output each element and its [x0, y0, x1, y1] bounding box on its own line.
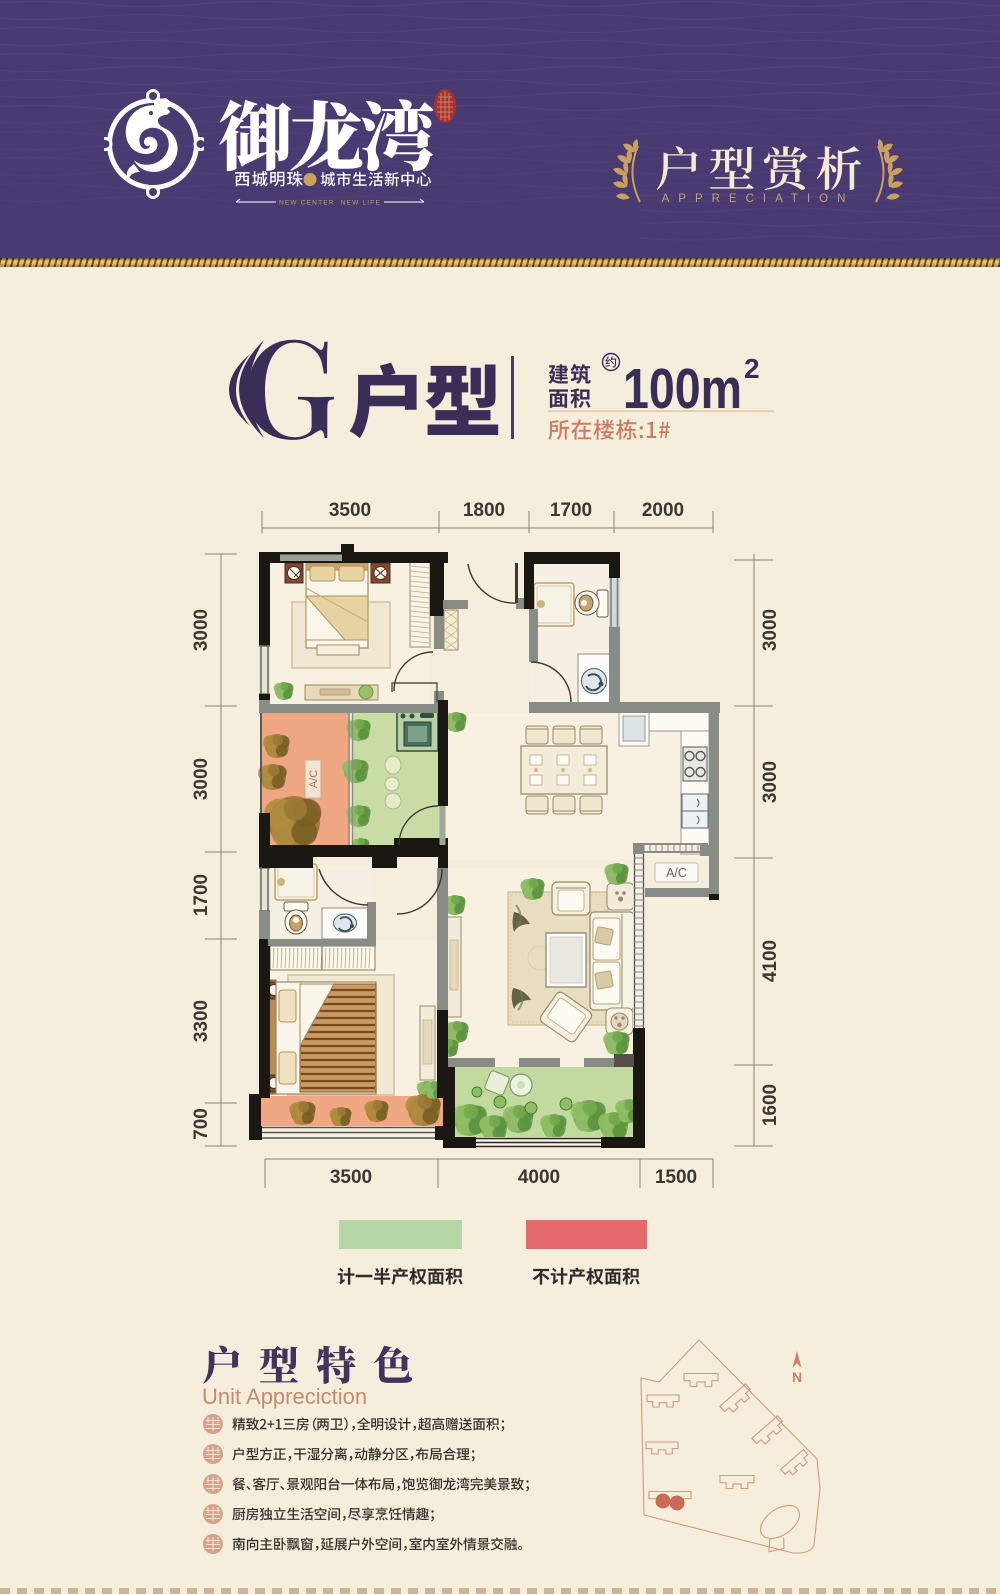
svg-text:2: 2 — [744, 353, 760, 384]
svg-text:1700: 1700 — [550, 500, 592, 521]
svg-text:3000: 3000 — [760, 761, 781, 803]
svg-text:3000: 3000 — [191, 609, 212, 651]
svg-text:2000: 2000 — [642, 500, 684, 521]
svg-text:1500: 1500 — [655, 1167, 697, 1188]
svg-text:1700: 1700 — [191, 874, 212, 916]
svg-text:Unit Appreciction: Unit Appreciction — [202, 1384, 367, 1409]
svg-text:APPRECIATION: APPRECIATION — [662, 193, 855, 205]
svg-text:700: 700 — [191, 1108, 212, 1140]
svg-text:3500: 3500 — [330, 1167, 372, 1188]
svg-text:3300: 3300 — [191, 1000, 212, 1042]
svg-text:1800: 1800 — [463, 500, 505, 521]
svg-text:3500: 3500 — [329, 500, 371, 521]
svg-text:4000: 4000 — [518, 1167, 560, 1188]
svg-text:N: N — [792, 1369, 802, 1385]
svg-text:A/C: A/C — [666, 866, 687, 880]
svg-text:3000: 3000 — [760, 609, 781, 651]
svg-text:3000: 3000 — [191, 758, 212, 800]
svg-text:4100: 4100 — [760, 940, 781, 982]
svg-text:1600: 1600 — [760, 1084, 781, 1126]
svg-text:A/C: A/C — [308, 770, 320, 788]
svg-text:NEW CENTER NEW LIFE: NEW CENTER NEW LIFE — [279, 200, 381, 207]
